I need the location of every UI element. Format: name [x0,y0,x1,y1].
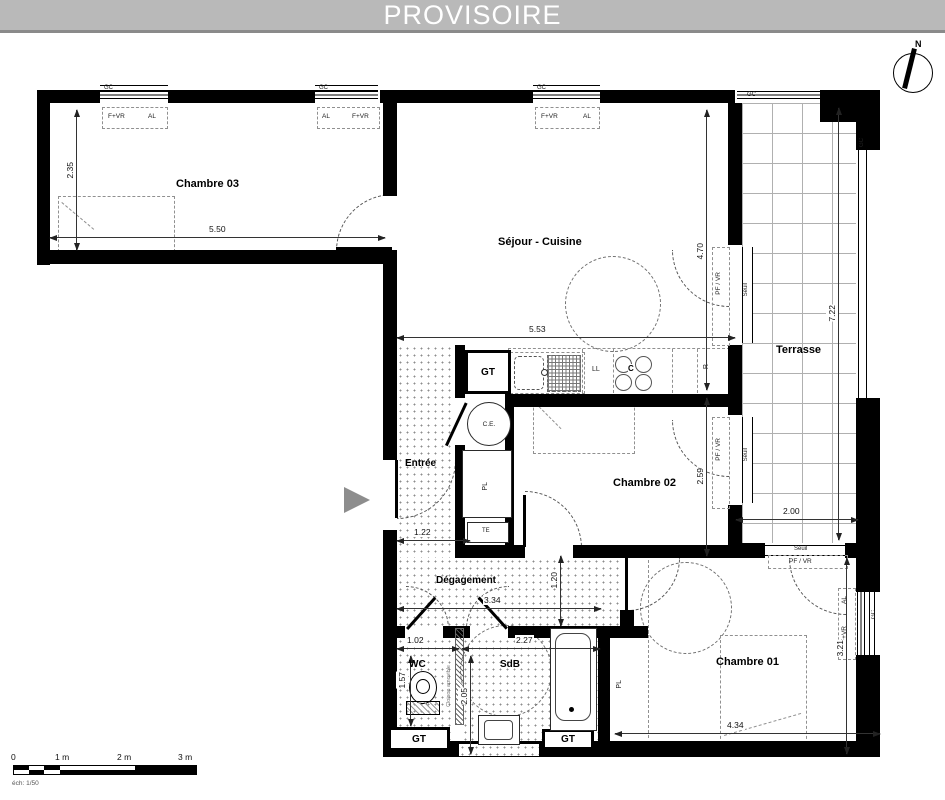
dimension-line [397,540,470,541]
counter-divider [697,349,698,393]
gt-label: GT [412,734,426,745]
scale-ratio-label: éch: 1/50 [12,780,39,787]
wall [383,626,405,638]
provisional-banner: PROVISOIRE [0,0,945,33]
door-leaf-entrance [395,460,398,518]
scale-bar [13,765,197,775]
technical-duct: GT [388,727,450,751]
threshold-label: Seuil [743,283,750,296]
faucet-icon [541,369,548,376]
wall [845,543,880,558]
window-chambre03-right [315,91,378,99]
dim-degagement-width: 3.34 [483,595,502,605]
guardrail-label: GC [747,92,756,99]
wall [728,345,742,415]
dimension-line [736,519,858,520]
guardrail [869,592,875,655]
dim-sdb-width: 2.27 [515,635,534,645]
dim-terrasse-height: 7.22 [826,305,838,322]
counter-divider [672,349,673,393]
room-label-sdb: SdB [500,659,520,671]
door-leaf-chambre01 [625,558,628,610]
dimension-line [50,237,385,238]
dim-wc-height: 1.57 [396,672,408,689]
dimension-line [560,556,561,626]
door-arc-chambre02 [525,491,582,548]
window-label: F+VR [541,113,558,120]
window-chambre03-left [100,91,168,99]
wall [380,90,533,103]
door-label: PF / VR [715,272,722,295]
toilet-tank [406,701,440,715]
hob-burner [635,374,652,391]
dim-sejour-width: 5.53 [528,324,547,334]
room-label-wc: WC [409,659,426,671]
window-chambre01 [857,592,865,655]
wall [856,398,880,545]
room-label-chambre03: Chambre 03 [176,178,239,190]
room-label-degagement: Dégagement [436,575,496,587]
dimension-line [706,110,707,390]
wall [820,90,880,122]
gt-label: GT [481,367,495,378]
hob-burner [635,356,652,373]
wall [168,90,315,103]
window-label: AL [322,113,330,120]
room-label-terrasse: Terrasse [776,344,821,356]
gt-label: GT [561,734,575,745]
window-sejour [533,91,600,99]
wall [383,103,397,196]
room-label-chambre02: Chambre 02 [613,477,676,489]
dim-terrasse-width: 2.00 [782,506,801,516]
door-leaf-chambre02 [523,495,526,547]
wall [573,545,634,558]
dim-chambre01-width: 4.34 [726,720,745,730]
scale-tick-2m: 2 m [116,752,132,762]
wall [37,250,397,264]
wall [600,90,735,103]
electrical-board-label: TE [482,528,490,535]
room-label-chambre01: Chambre 01 [716,656,779,668]
guardrail-label: GC [537,85,546,92]
bathtub-drain-icon [569,707,574,712]
scale-tick-0: 0 [10,752,17,762]
dim-chambre02-height: 2.59 [694,468,706,485]
terrasse-side-guardrail [858,150,867,398]
dimension-line [397,608,601,609]
door-label: PF / VR [715,438,722,461]
sink-drainer [547,355,581,392]
room-label-entree: Entrée [405,458,436,470]
dim-degagement-height: 1.20 [548,572,560,589]
dimension-line [397,337,735,338]
window-label: AL [148,113,156,120]
wall [634,545,765,558]
entrance-arrow-icon [344,487,370,513]
partition-label: Cloison amovible [446,665,453,707]
hob-burner [615,374,632,391]
window-label: AL [583,113,591,120]
wall [383,250,397,460]
dim-chambre03-height: 2.35 [64,162,76,179]
door-arc-chambre03 [336,194,393,251]
window-label: F+VR [108,113,125,120]
dimension-line [462,648,600,649]
dim-chambre01-height: 3.21 [834,640,846,657]
dim-entree-width: 1.22 [413,527,432,537]
water-heater-label: C.E. [483,421,496,428]
door-label: PF / VR [789,558,812,565]
removable-partition [455,628,464,725]
dimension-line [76,110,77,250]
door-annotation-box [712,417,730,509]
washing-machine-label: LL [592,366,600,373]
compass-north-label: N [915,39,922,49]
dimension-line [838,108,839,540]
toilet-bowl-inner [416,679,430,694]
dimension-line [615,733,880,734]
room-label-sejour: Séjour - Cuisine [498,236,582,248]
washbasin-inner [484,720,513,740]
wall [462,545,525,558]
scale-tick-1m: 1 m [54,752,70,762]
dim-wc-width: 1.02 [406,635,425,645]
dim-chambre03-width: 5.50 [208,224,227,234]
wall [728,103,742,245]
wall [512,394,728,407]
threshold-label: Seuil [743,448,750,461]
counter-divider [613,349,614,393]
door-annotation-box [712,247,730,346]
turning-circle-sdb [460,625,552,717]
cooktop-label: C [628,364,634,373]
wall [856,655,880,755]
guardrail-label: GC [871,610,878,619]
dimension-line [397,648,459,649]
banner-title: PROVISOIRE [383,0,561,31]
guardrail-label: GC [319,85,328,92]
wall [383,530,397,757]
floor-plan-page: PROVISOIRE N [0,0,945,800]
wall [455,345,465,398]
closet-label: PL [616,680,623,689]
dim-sejour-height: 4.70 [694,243,706,260]
wall [620,610,634,628]
dimension-line [846,558,847,754]
guardrail-label: GC [104,85,113,92]
closet-label: PL [482,482,489,491]
guardrail-label: GC [859,138,866,147]
scale-tick-3m: 3 m [177,752,193,762]
dimension-line [470,656,471,754]
technical-duct: GT [465,350,511,394]
technical-duct: GT [542,729,594,750]
threshold-label: Seuil [794,546,807,553]
dim-sdb-height: 2.05 [458,688,470,705]
sink-bowl [514,356,544,390]
dimension-line [706,398,707,556]
window-label: F+VR [352,113,369,120]
water-heater: C.E. [467,402,511,446]
